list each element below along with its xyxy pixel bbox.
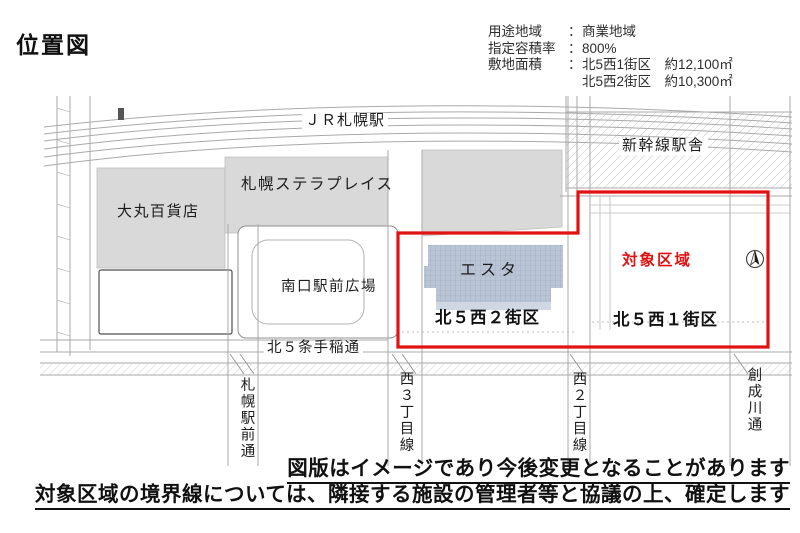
teine-street-lines: [40, 340, 792, 375]
esta-label: エスタ: [460, 262, 520, 280]
info-label: 敷地面積: [488, 57, 568, 74]
south-plaza-label: 南口駅前広場: [281, 280, 377, 296]
note-line2: 対象区域の境界線については、隣接する施設の管理者等と協議の上、確定します: [35, 477, 790, 510]
info-value: 商業地域: [582, 24, 636, 41]
block-west2-label: 北５西２街区: [435, 309, 540, 327]
info-colon: [568, 74, 582, 91]
shinkansen-station-label: 新幹線駅舎: [619, 138, 708, 155]
compass-icon: [747, 250, 764, 268]
zoning-info-block: 用途地域 ： 商業地域 指定容積率 ： 800% 敷地面積 ： 北5西1街区 約…: [488, 24, 733, 90]
shinkansen-area: [560, 96, 792, 213]
station-south-building: [422, 150, 562, 236]
target-area-label: 対象区域: [622, 252, 692, 269]
info-colon: ：: [568, 57, 582, 74]
info-row-site-area-1: 敷地面積 ： 北5西1街区 約12,100㎡: [488, 57, 733, 74]
info-row-land-use: 用途地域 ： 商業地域: [488, 24, 733, 41]
info-label: 指定容積率: [488, 41, 568, 58]
daimaru-building: [97, 168, 232, 334]
info-colon: ：: [568, 41, 582, 58]
jr-sapporo-station-label: ＪＲ札幌駅: [302, 113, 388, 130]
info-label: [488, 74, 568, 91]
stellar-place-label: 札幌ステラプレイス: [241, 176, 394, 193]
block-west1-label: 北５西１街区: [613, 311, 718, 329]
info-value: 800%: [582, 41, 617, 58]
info-colon: ：: [568, 24, 582, 41]
page-title: 位置図: [16, 26, 91, 60]
street-nishi3-label: 西３丁目線: [398, 371, 413, 454]
stellar-place-building: [225, 157, 388, 233]
teine-street-label: 北５条手稲通: [264, 341, 363, 357]
info-value: 北5西2街区 約10,300㎡: [582, 74, 733, 91]
location-map-page: 位置図 用途地域 ： 商業地域 指定容積率 ： 800% 敷地面積 ： 北5西1…: [0, 0, 800, 533]
info-row-site-area-2: 北5西2街区 約10,300㎡: [488, 74, 733, 91]
info-row-far: 指定容積率 ： 800%: [488, 41, 733, 58]
info-label: 用途地域: [488, 24, 568, 41]
street-ekimae-label: 札幌駅前通: [239, 377, 254, 460]
info-value: 北5西1街区 約12,100㎡: [582, 57, 733, 74]
street-sosei-label: 創成川通: [746, 367, 761, 433]
street-nishi2-label: 西２丁目線: [571, 371, 586, 454]
daimaru-label: 大丸百貨店: [117, 204, 200, 221]
